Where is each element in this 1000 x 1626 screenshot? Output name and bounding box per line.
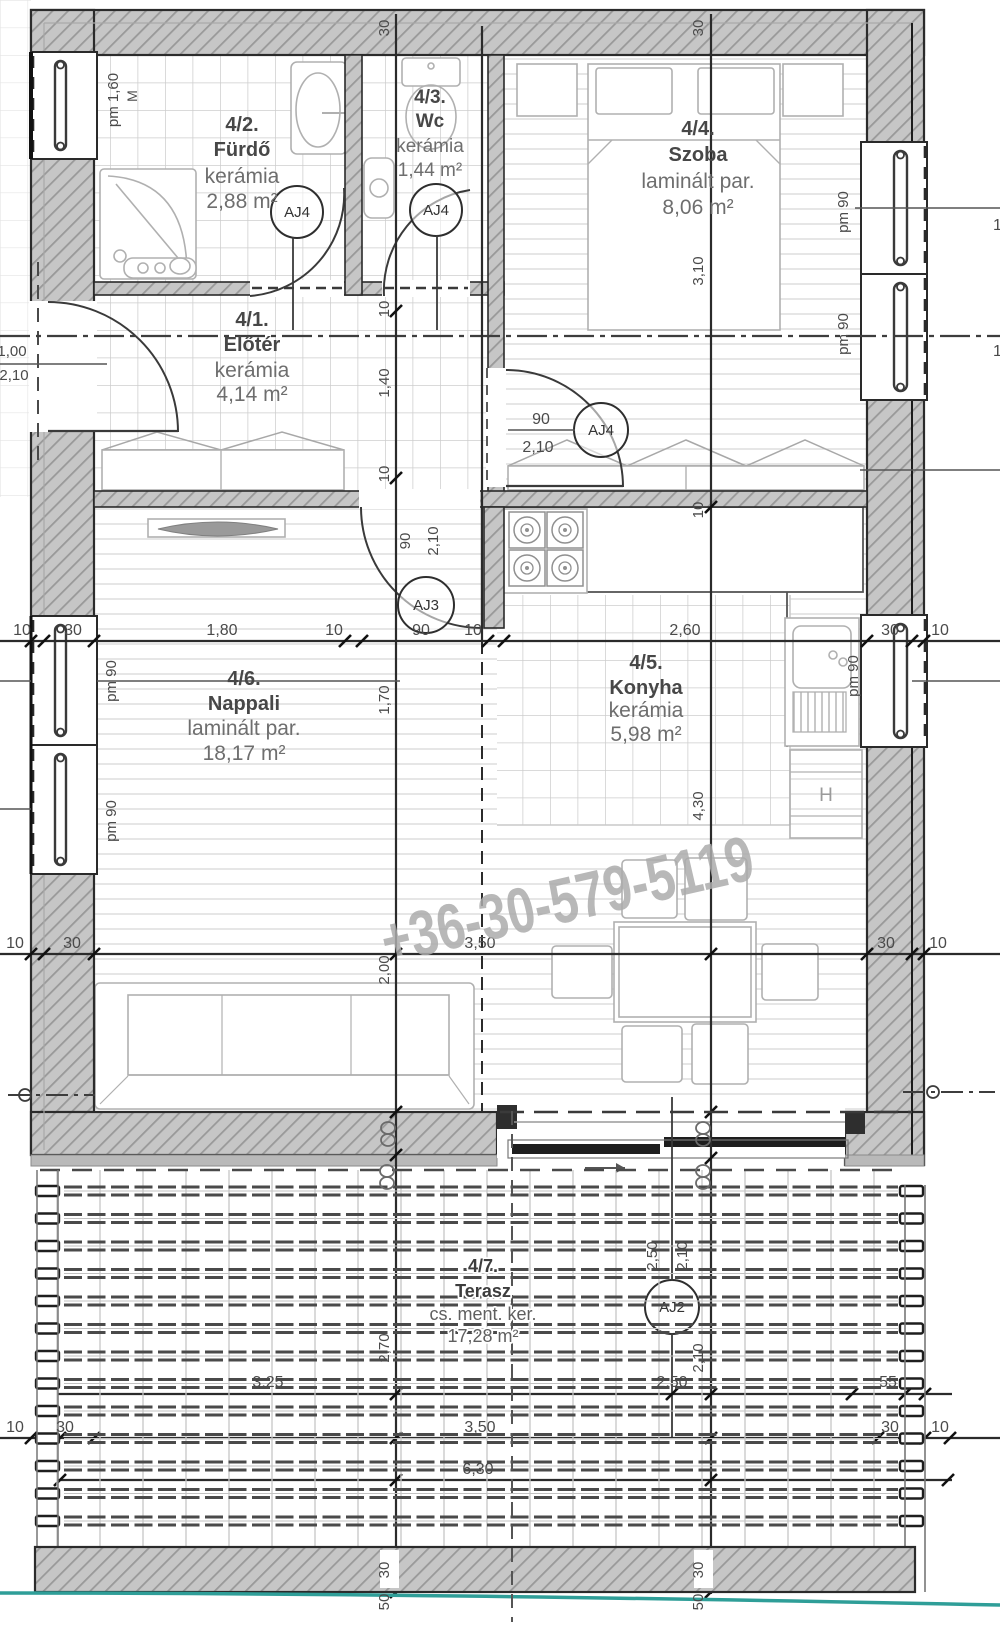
svg-text:2,70: 2,70: [376, 1333, 393, 1362]
svg-text:kerámia: kerámia: [609, 699, 684, 722]
svg-text:laminált par.: laminált par.: [641, 170, 754, 193]
svg-text:4/1.: 4/1.: [235, 309, 268, 331]
svg-text:10: 10: [993, 343, 1000, 360]
svg-text:1,80: 1,80: [206, 622, 237, 639]
svg-text:90: 90: [532, 411, 550, 428]
svg-text:4,14 m²: 4,14 m²: [216, 383, 287, 406]
svg-text:kerámia: kerámia: [205, 165, 280, 188]
svg-text:10: 10: [931, 622, 949, 639]
svg-text:pm 1,60: pm 1,60: [105, 73, 122, 127]
svg-text:AJ4: AJ4: [423, 202, 449, 219]
svg-text:10: 10: [931, 1419, 949, 1436]
svg-text:2,88 m²: 2,88 m²: [206, 190, 277, 213]
svg-text:Terasz: Terasz: [455, 1281, 511, 1301]
svg-text:AJ3: AJ3: [413, 597, 439, 614]
svg-text:10: 10: [464, 622, 482, 639]
svg-text:4/3.: 4/3.: [414, 87, 446, 108]
svg-text:30: 30: [877, 935, 895, 952]
svg-text:4/5.: 4/5.: [629, 652, 662, 674]
svg-text:pm 90: pm 90: [845, 655, 862, 697]
svg-text:10: 10: [6, 1419, 24, 1436]
svg-text:90: 90: [412, 622, 430, 639]
svg-text:3,50: 3,50: [464, 1419, 495, 1436]
svg-text:8,06 m²: 8,06 m²: [662, 196, 733, 219]
svg-text:H: H: [819, 785, 833, 806]
svg-text:pm 90: pm 90: [103, 660, 120, 702]
svg-text:5,98 m²: 5,98 m²: [610, 723, 681, 746]
svg-text:2,10: 2,10: [522, 439, 553, 456]
svg-text:10: 10: [690, 502, 707, 519]
svg-text:kerámia: kerámia: [396, 136, 464, 157]
svg-text:1,44 m²: 1,44 m²: [398, 160, 462, 181]
svg-text:cs. ment. ker.: cs. ment. ker.: [429, 1304, 536, 1324]
svg-text:Előtér: Előtér: [224, 334, 281, 356]
svg-text:1,70: 1,70: [376, 685, 393, 714]
svg-text:10: 10: [325, 622, 343, 639]
svg-text:2,10: 2,10: [674, 1241, 691, 1270]
svg-text:18,17 m²: 18,17 m²: [203, 742, 286, 765]
svg-text:50: 50: [376, 1594, 393, 1611]
svg-text:2,10: 2,10: [690, 1343, 707, 1372]
svg-text:Wc: Wc: [416, 111, 445, 132]
svg-text:laminált par.: laminált par.: [187, 717, 300, 740]
svg-text:pm 90: pm 90: [835, 313, 852, 355]
svg-text:1,40: 1,40: [376, 368, 393, 397]
svg-text:30: 30: [690, 20, 707, 37]
svg-text:pm 90: pm 90: [835, 191, 852, 233]
svg-text:90: 90: [397, 533, 414, 550]
svg-text:3,25: 3,25: [252, 1374, 283, 1391]
svg-text:Nappali: Nappali: [208, 693, 280, 715]
svg-text:4/6.: 4/6.: [227, 668, 260, 690]
svg-text:4,30: 4,30: [690, 791, 707, 820]
svg-text:10: 10: [376, 301, 393, 318]
svg-text:30: 30: [56, 1419, 74, 1436]
svg-text:10: 10: [13, 622, 31, 639]
svg-text:30: 30: [690, 1562, 707, 1579]
svg-text:kerámia: kerámia: [215, 359, 290, 382]
svg-text:3,10: 3,10: [690, 256, 707, 285]
svg-text:30: 30: [881, 622, 899, 639]
svg-text:4/7.: 4/7.: [468, 1256, 498, 1276]
svg-text:AJ4: AJ4: [284, 204, 310, 221]
svg-text:2,50: 2,50: [656, 1374, 687, 1391]
svg-text:30: 30: [63, 935, 81, 952]
svg-text:30: 30: [376, 1562, 393, 1579]
svg-text:pm 90: pm 90: [103, 800, 120, 842]
svg-text:17,28 m²: 17,28 m²: [447, 1326, 518, 1346]
svg-text:Konyha: Konyha: [609, 677, 683, 699]
svg-text:2,50: 2,50: [644, 1241, 661, 1270]
svg-text:2,60: 2,60: [669, 622, 700, 639]
svg-text:AJ2: AJ2: [659, 1299, 685, 1316]
svg-text:10: 10: [6, 935, 24, 952]
svg-text:30: 30: [881, 1419, 899, 1436]
svg-text:10: 10: [929, 935, 947, 952]
svg-text:30: 30: [376, 20, 393, 37]
svg-text:30: 30: [64, 622, 82, 639]
svg-text:6,30: 6,30: [462, 1461, 493, 1478]
svg-text:2,10: 2,10: [0, 367, 29, 384]
svg-text:Fürdő: Fürdő: [214, 139, 271, 161]
svg-text:10: 10: [993, 217, 1000, 234]
svg-text:AJ4: AJ4: [588, 422, 614, 439]
svg-text:1,00: 1,00: [0, 343, 27, 360]
svg-text:10: 10: [376, 466, 393, 483]
svg-text:55: 55: [879, 1374, 897, 1391]
svg-text:M: M: [124, 90, 140, 102]
svg-text:2,10: 2,10: [425, 526, 442, 555]
svg-text:50: 50: [690, 1594, 707, 1611]
svg-text:4/2.: 4/2.: [225, 114, 258, 136]
svg-text:4/4.: 4/4.: [681, 118, 714, 140]
svg-text:Szoba: Szoba: [669, 144, 729, 166]
